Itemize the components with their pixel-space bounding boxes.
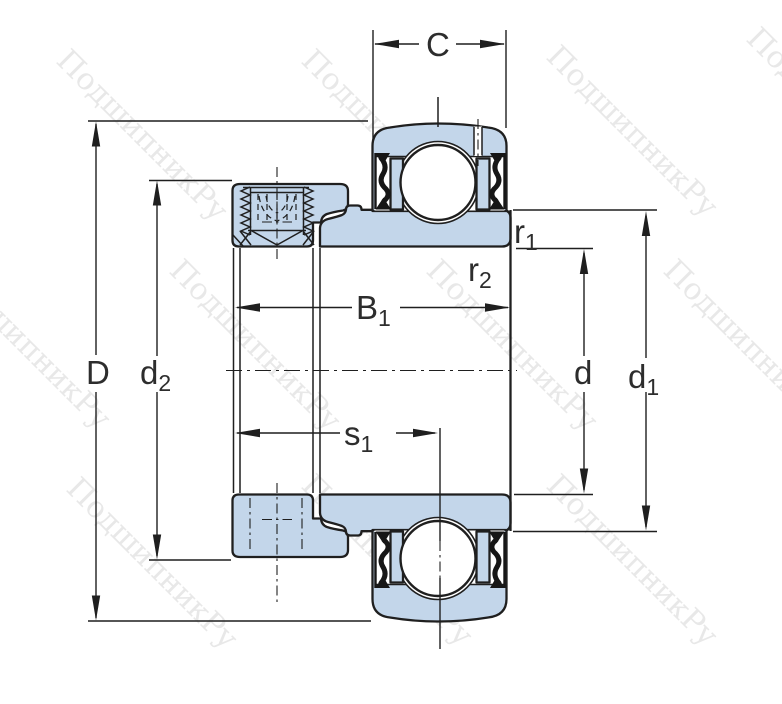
dim-label-r2: r2 — [468, 251, 492, 293]
dim-label-d: d — [574, 354, 592, 391]
dim-label-d2: d2 — [140, 354, 171, 396]
bearing-upper-section — [373, 119, 507, 224]
dim-label-d1: d1 — [628, 358, 659, 400]
inner-ring-shoulder-upper-right — [477, 159, 490, 210]
watermark-text: ПодшипникРу — [0, 251, 118, 437]
watermark-text: ПодшипникРу — [59, 471, 245, 657]
dim-label-C: C — [426, 26, 450, 63]
dim-label-s1: s1 — [344, 415, 373, 457]
watermark-text: ПодшипникРу — [739, 21, 782, 207]
dim-label-B1: B1 — [356, 289, 391, 331]
watermark-text: ПодшипникРу — [539, 39, 725, 225]
bearing-drawing-page: ПодшипникРу ПодшипникРу ПодшипникРу Подш… — [0, 0, 782, 704]
watermark-text: ПодшипникРу — [49, 43, 235, 229]
watermark-text: ПодшипникРу — [656, 253, 782, 439]
watermark-text: ПодшипникРу — [419, 253, 605, 439]
arrow-up — [92, 122, 100, 147]
dimension-d2: d2 — [140, 181, 232, 561]
bearing-cross-section-drawing: ПодшипникРу ПодшипникРу ПодшипникРу Подш… — [0, 0, 782, 704]
watermark-text: ПодшипникРу — [539, 468, 725, 654]
arrow-left — [374, 40, 399, 48]
ball-lower — [401, 521, 476, 596]
dim-label-r1: r1 — [514, 213, 538, 255]
arrow-down — [92, 596, 100, 621]
dim-label-D: D — [86, 354, 110, 391]
ball-upper — [401, 145, 476, 220]
arrow-right — [480, 40, 505, 48]
inner-ring-shoulder-lower-right — [477, 532, 490, 583]
